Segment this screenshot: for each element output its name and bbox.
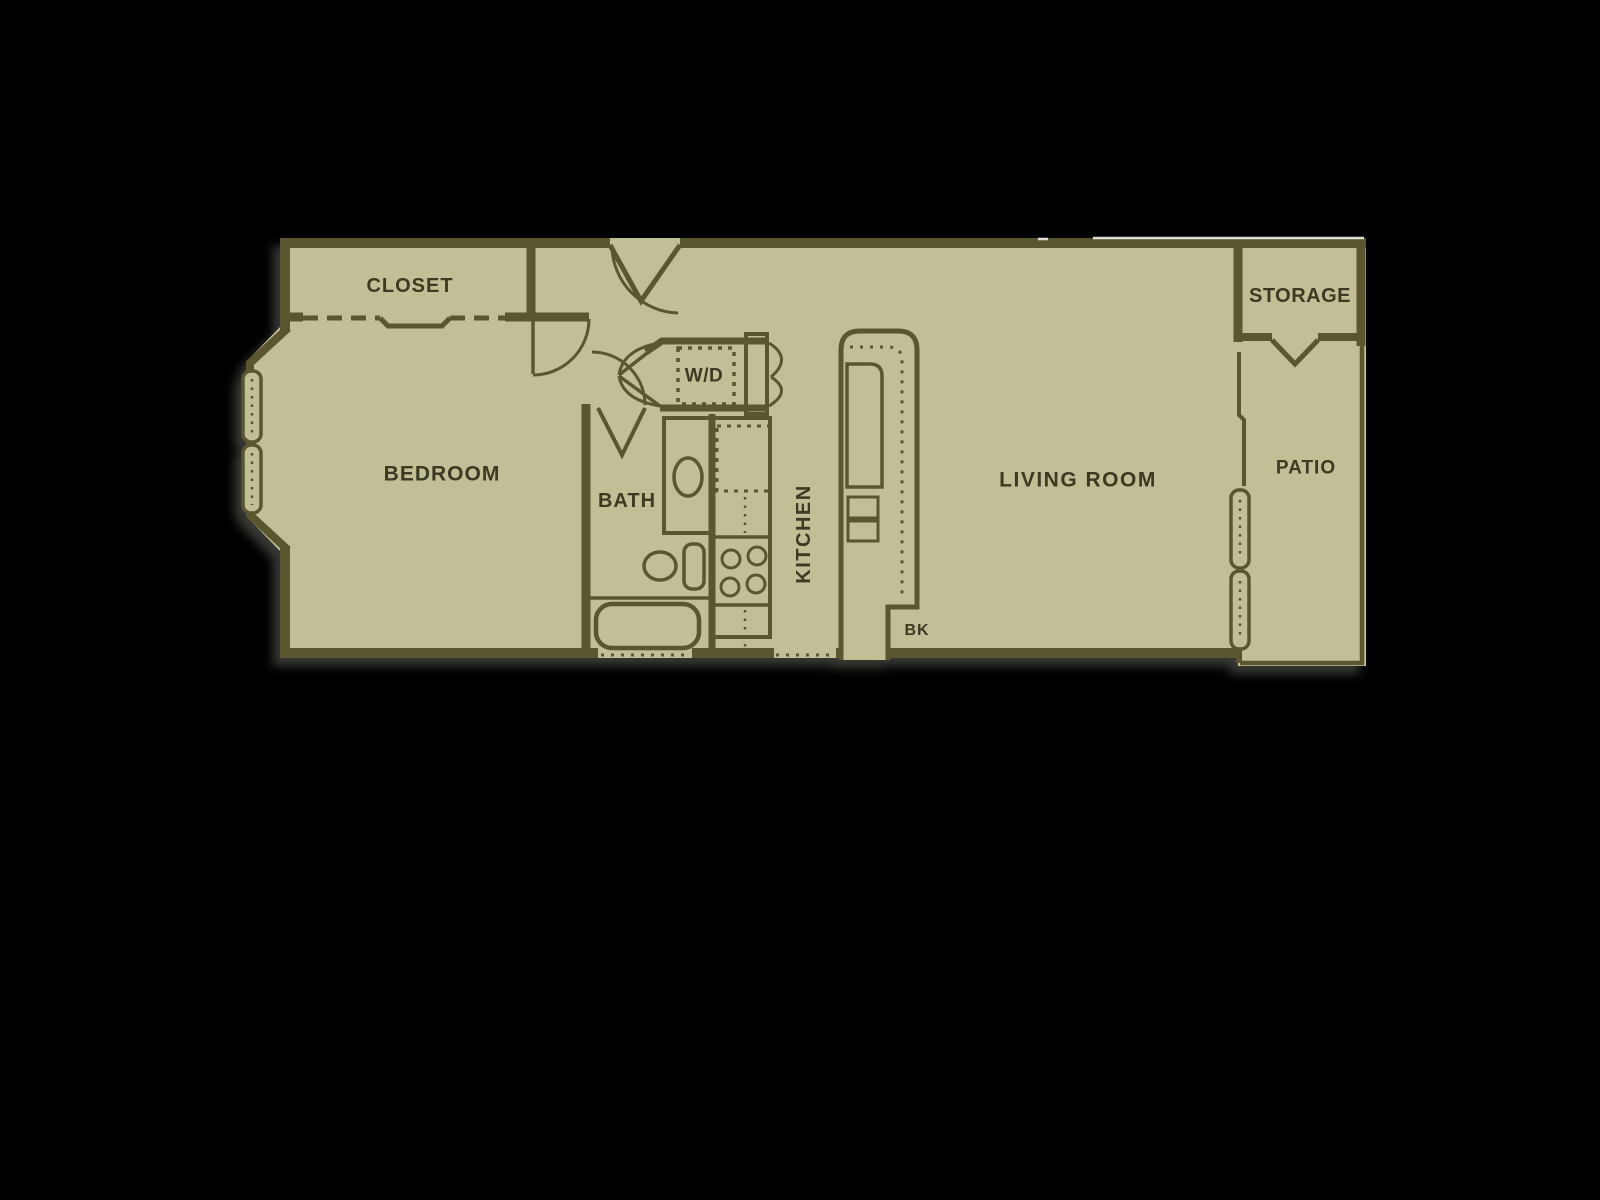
label-washer-dryer: W/D: [685, 367, 723, 386]
label-storage: STORAGE: [1249, 286, 1351, 306]
floor-plan-page: CLOSET BEDROOM BATH W/D KITCHEN LIVING R…: [0, 0, 1600, 1200]
label-kitchen: KITCHEN: [794, 484, 814, 583]
label-breakfast-bar: BK: [904, 623, 929, 639]
floor-plan-drawing: [0, 0, 1600, 1200]
label-closet: CLOSET: [366, 276, 453, 296]
label-bath: BATH: [598, 491, 656, 511]
label-living-room: LIVING ROOM: [999, 470, 1157, 491]
label-bedroom: BEDROOM: [384, 464, 501, 485]
bay-window: [243, 371, 261, 513]
label-patio: PATIO: [1276, 459, 1336, 478]
floor-area: [246, 238, 1366, 666]
apartment-plan: [243, 238, 1366, 666]
